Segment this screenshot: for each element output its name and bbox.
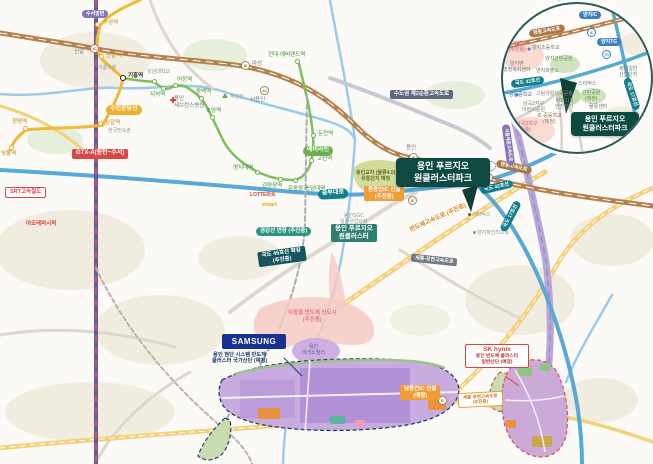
station-dot bbox=[161, 86, 166, 91]
station-dot bbox=[120, 75, 126, 81]
severance-hospital: 용인 세브란스병원 bbox=[166, 96, 204, 109]
inset-school-line2: (예정) bbox=[543, 119, 556, 125]
inset-project-line1: 용인 푸르지오 bbox=[585, 116, 626, 123]
everline-badge: 에버라인 bbox=[303, 146, 333, 156]
idong-line1: 이동읍 반도체 신도시 bbox=[288, 310, 337, 316]
dongyongin-line1: 동용인IC 신설 bbox=[368, 187, 400, 193]
station-dot bbox=[295, 59, 300, 64]
samsung-cluster-label: 용인 첨단 시스템 반도체 클러스터 국가산단 (예정) bbox=[212, 352, 267, 365]
namyongin-line1: 남용인IC 신설 bbox=[404, 386, 436, 392]
inset-yangji-district: 양지지구 (추진중) bbox=[508, 41, 526, 53]
inset-119-center: 양지119 안전센터 bbox=[555, 98, 573, 110]
starbucks-label: 스타벅스 bbox=[468, 212, 490, 218]
inset-office-line2: 행정복지센터 bbox=[503, 67, 531, 73]
yongin-ic-label: 용인 bbox=[406, 145, 416, 152]
route45-line2: (추진중) bbox=[272, 255, 291, 264]
dongyongin-line2: (추진중) bbox=[375, 194, 394, 200]
station-dot bbox=[309, 158, 314, 163]
gangnam-univ: 강남대학교 bbox=[147, 69, 170, 75]
project-sub-line1: 용인 푸르지오 bbox=[335, 225, 373, 232]
maseong-ic-icon: IC bbox=[241, 61, 250, 70]
inset-gorim-park: 고림생활체육공원 bbox=[536, 91, 573, 97]
project-main-line1: 용인 푸르지오 bbox=[417, 161, 469, 171]
inset-yangji-elem: 양지초등학교 bbox=[532, 45, 560, 51]
station-dunjeon: 둔전역 bbox=[318, 131, 333, 138]
station-eojeong: 어정역 bbox=[177, 77, 192, 84]
starbucks-icon bbox=[468, 213, 471, 216]
sk-cluster-area bbox=[489, 360, 567, 457]
station-dot bbox=[95, 22, 100, 27]
singal-jc-label: 신갈 bbox=[74, 49, 84, 56]
inset-logistics-center: 물류센터 bbox=[589, 104, 607, 110]
inset-yangji-ic-badge: 양지IC bbox=[579, 11, 601, 19]
logistics-district-label: 용인교자 (물류4.0) 유통단지 예정 bbox=[356, 170, 395, 182]
srt-badge: SRT고속철도 bbox=[5, 187, 46, 198]
station-dot bbox=[293, 178, 298, 183]
station-dot bbox=[9, 145, 14, 150]
station-jeondae: 전대·에버랜드역 bbox=[268, 52, 305, 59]
maseong-ic-label: 마성 bbox=[252, 61, 262, 68]
severance-line1: 용인 bbox=[174, 96, 184, 102]
inset-jeil-industrial: 제일일반 산업단지 bbox=[619, 66, 637, 78]
station-gimnyangjang: 김량장역 bbox=[262, 183, 282, 190]
idong-newtown-label: 이동읍 반도체 신도시 (추진중) bbox=[288, 310, 337, 323]
namyongin-line2: (예정) bbox=[413, 393, 427, 399]
station-dot bbox=[98, 121, 103, 126]
bundang-line-badge: 수인분당선 bbox=[106, 105, 142, 115]
seoyongin-jc-label: 서용인 bbox=[250, 97, 265, 104]
dongyongin-ic-badge: 동용인IC 신설 (추진중) bbox=[364, 186, 404, 201]
giheung-guoffice: 기흥구청 bbox=[98, 65, 116, 71]
station-dot bbox=[255, 170, 260, 175]
inset-school-plan: 초·중등학교 (예정) bbox=[537, 113, 562, 125]
station-gojin: 고진역 bbox=[317, 156, 332, 163]
sk-hynix-badge: SK hynix 용인 반도체 클러스터 일반산단 (예정) bbox=[465, 344, 529, 368]
inset-dongmun-line2: (추진중) bbox=[514, 127, 531, 133]
logistics-line2: 유통단지 예정 bbox=[361, 176, 390, 182]
station-cheongmyeong: 청명역 bbox=[12, 119, 27, 126]
inset-yangji-police: 양지파출소 bbox=[536, 68, 559, 74]
amore-pacific: 아모레퍼시픽 bbox=[26, 221, 56, 228]
station-dot bbox=[210, 115, 215, 120]
dongyongin-ic-icon: IC bbox=[408, 196, 417, 205]
samsung-cluster-area bbox=[198, 358, 459, 460]
station-singal: 신갈역 bbox=[106, 53, 121, 60]
inset-yangji-tg-badge: 양지TG bbox=[597, 38, 621, 46]
jungbu-daero-badge: 중부대로 bbox=[318, 188, 349, 199]
folk-village: 한국민속촌 bbox=[108, 128, 131, 134]
sk-line1: 용인 반도체 클러스터 bbox=[468, 354, 526, 360]
samsung-line2: 클러스터 국가산단 (예정) bbox=[212, 358, 267, 364]
location-map: 수서방면 구성역 JC 신갈 신갈역 기흥구청 기흥역 강남대학교 지석역 어정… bbox=[0, 0, 653, 464]
inset-project-line2: 원클러스터파크 bbox=[582, 125, 627, 132]
singal-jc-icon: JC bbox=[90, 44, 99, 53]
capital2-ring-badge: 수도권 제2순환고속도로 bbox=[390, 90, 453, 99]
lotte-mart: LOTTE마트 bbox=[250, 192, 276, 198]
sejong-south-line2: (추진중) bbox=[473, 399, 489, 405]
inset-district-line2: (추진중) bbox=[509, 47, 526, 53]
inset-tg-icon: TG bbox=[602, 50, 611, 59]
starbucks-text: 스타벅스 bbox=[472, 212, 490, 218]
inset-namgok-park: 남곡2지구 어린이공원 bbox=[522, 101, 545, 113]
project-main-badge: 용인 푸르지오 원클러스터파크 bbox=[396, 158, 490, 187]
namyongin-ic-badge: 남용인IC 신설 (예정) bbox=[400, 385, 440, 400]
station-dot bbox=[23, 126, 28, 131]
gtx-direction-badge: 수서방면 bbox=[82, 10, 108, 18]
station-sanggal: 상갈역 bbox=[105, 120, 120, 127]
gyeonggang-ext-badge: 경강선 연장 (추진중) bbox=[256, 227, 311, 236]
severance-line2: 세브란스병원 bbox=[174, 103, 204, 109]
samsung-logo-badge: SAMSUNG bbox=[222, 334, 286, 349]
inset-yangji-office: 양지면 행정복지센터 bbox=[503, 61, 531, 73]
station-giheung: 기흥역 bbox=[128, 73, 143, 80]
station-chodang: 초당역 bbox=[206, 108, 221, 115]
sk-line2: 일반산단 (예정) bbox=[468, 360, 526, 366]
resort-icon bbox=[473, 231, 476, 234]
site-inset-map: 양지IC IC 양지TG TG 영동고속도로 국도 42호선 국도 17호선 양… bbox=[501, 2, 653, 154]
station-dongbaek: 동백역 bbox=[196, 89, 211, 96]
inset-project-badge: 용인 푸르지오 원클러스터파크 bbox=[571, 112, 639, 136]
gtx-a-badge: GTX-A(동탄~수서) bbox=[72, 149, 128, 159]
seokseong-mountain: 석성산 bbox=[230, 94, 244, 100]
station-dot bbox=[311, 133, 316, 138]
station-yeongtong: 영통역 bbox=[1, 151, 16, 158]
emart: emart bbox=[262, 202, 277, 209]
inset-ic-icon: IC bbox=[587, 28, 596, 37]
techno-valley-label: 용인 테크노밸리 bbox=[302, 344, 325, 356]
idong-line2: (추진중) bbox=[303, 317, 322, 323]
inset-yongdong-school: 용동중학교 bbox=[509, 92, 532, 98]
station-myeongji: 명지대역 bbox=[233, 165, 253, 172]
project-sub-badge: 용인 푸르지오 원클러스터 bbox=[331, 224, 377, 242]
inset-green-plan: 근린공원 (예정) bbox=[582, 90, 600, 102]
project-sub-line2: 원클러스터 bbox=[339, 233, 369, 240]
station-dot bbox=[278, 177, 283, 182]
project-main-line2: 원클러스터파크 bbox=[414, 173, 472, 183]
sk-logo: SK hynix bbox=[468, 346, 526, 354]
inset-starbucks: 스타벅스 bbox=[578, 81, 596, 87]
station-jiseok: 지석역 bbox=[150, 92, 165, 99]
station-guseong: 구성역 bbox=[103, 20, 118, 27]
station-dot bbox=[152, 79, 157, 84]
techno-line2: 테크노밸리 bbox=[302, 350, 325, 356]
sejong-pocheon-south-badge: 세종-포천고속도로 (추진중) bbox=[458, 391, 503, 408]
inset-greenplan-line2: (예정) bbox=[585, 96, 598, 102]
inset-yangji-park: 양지근린공원 bbox=[545, 56, 573, 62]
seoyongin-jc-icon: JC bbox=[260, 86, 269, 95]
inset-dongmun-district: 동문남곡2지구 (추진중) bbox=[507, 121, 537, 133]
inset-119-line2: 안전센터 bbox=[555, 104, 573, 110]
mountain-icon bbox=[222, 93, 228, 98]
station-dot bbox=[99, 54, 104, 59]
